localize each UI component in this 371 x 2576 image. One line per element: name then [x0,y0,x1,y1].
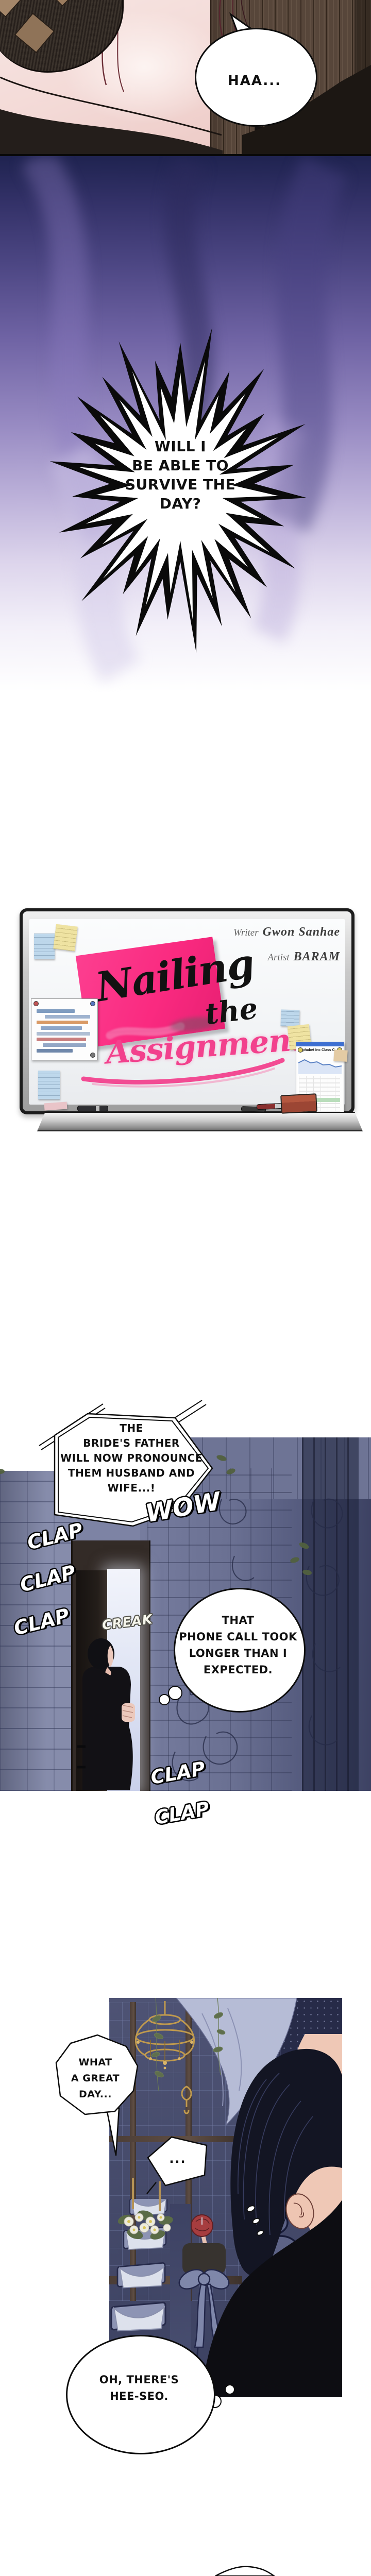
burst-line: DAY? [103,495,258,514]
caption-line: WILL NOW PRONOUNCE [54,1451,209,1466]
gantt-bar [37,1032,90,1036]
sweat-drops [245,2202,271,2241]
pin-gray [90,1053,95,1058]
gantt-bar [37,1021,88,1024]
sticky-note [53,924,78,952]
writer-name: Gwon Sanhae [263,925,340,939]
burst-line: BE ABLE TO [103,456,258,476]
greatday-line: DAY... [59,2087,131,2103]
caption-line: THEM HUSBAND AND [54,1466,209,1481]
caption-line: THE [54,1421,209,1436]
gantt-bar [37,1038,86,1041]
greatday-line: A GREAT [59,2071,131,2087]
panel-closeup: HAA... [0,0,371,156]
dialogue-burst: WILL I BE ABLE TO SURVIVE THE DAY? [103,437,258,514]
thought-line: LONGER THAN I [176,1646,300,1662]
heeseo-line: HEE-SEO. [77,2388,201,2405]
title-underline-swoosh [72,1051,294,1092]
thought-trail-circle [225,2384,235,2395]
burst-bubble [0,156,371,692]
caption-text: THE BRIDE'S FATHER WILL NOW PRONOUNCE TH… [54,1421,209,1496]
marker-tray [37,1112,363,1131]
dialogue-greatday: WHAT A GREAT DAY... [59,2055,131,2102]
gantt-bar [37,1009,75,1013]
bottom-bubble-peak [211,2563,278,2576]
burst-line: WILL I [103,437,258,456]
thought-line: PHONE CALL TOOK [176,1629,300,1646]
pin-red [33,1001,39,1006]
thought-trail-circle [168,1686,182,1700]
artist-label: Artist [267,952,289,963]
dialogue-haa: HAA... [205,71,304,91]
writer-label: Writer [233,927,259,938]
thought-line: THAT [176,1613,300,1629]
thought-line: EXPECTED. [176,1662,300,1679]
gantt-bar [43,1043,86,1047]
burst-line: SURVIVE THE [103,476,258,495]
greatday-line: WHAT [59,2055,131,2071]
sfx-clap-5: CLAP [153,1798,211,1829]
sticky-note [280,1009,299,1026]
gantt-bar [41,1026,82,1030]
heeseo-line: OH, THERE'S [77,2372,201,2388]
gantt-paper [31,998,98,1060]
sticky-note [333,1049,347,1062]
panel-purple-swirl: WILL I BE ABLE TO SURVIVE THE DAY? [0,156,371,692]
marker-black [77,1106,108,1111]
caption-line: BRIDE'S FATHER [54,1436,209,1451]
board-eraser [280,1093,317,1114]
pin-blue [90,1001,95,1006]
gantt-bar [45,1015,90,1019]
note-paper [38,1071,60,1099]
artist-name: BARAM [294,950,340,963]
dialogue-dots: ... [155,2149,201,2168]
thought-text-heeseo: OH, THERE'S HEE-SEO. [77,2372,201,2405]
gantt-bar [37,1049,73,1053]
paper-header-bar [296,1042,344,1046]
sticky-note [34,934,55,959]
webtoon-page: HAA... WILL I BE ABLE TO SURVIVE THE DAY… [0,0,371,2576]
thought-text-phone: THAT PHONE CALL TOOK LONGER THAN I EXPEC… [176,1613,300,1679]
pin-yellow [298,1047,303,1053]
